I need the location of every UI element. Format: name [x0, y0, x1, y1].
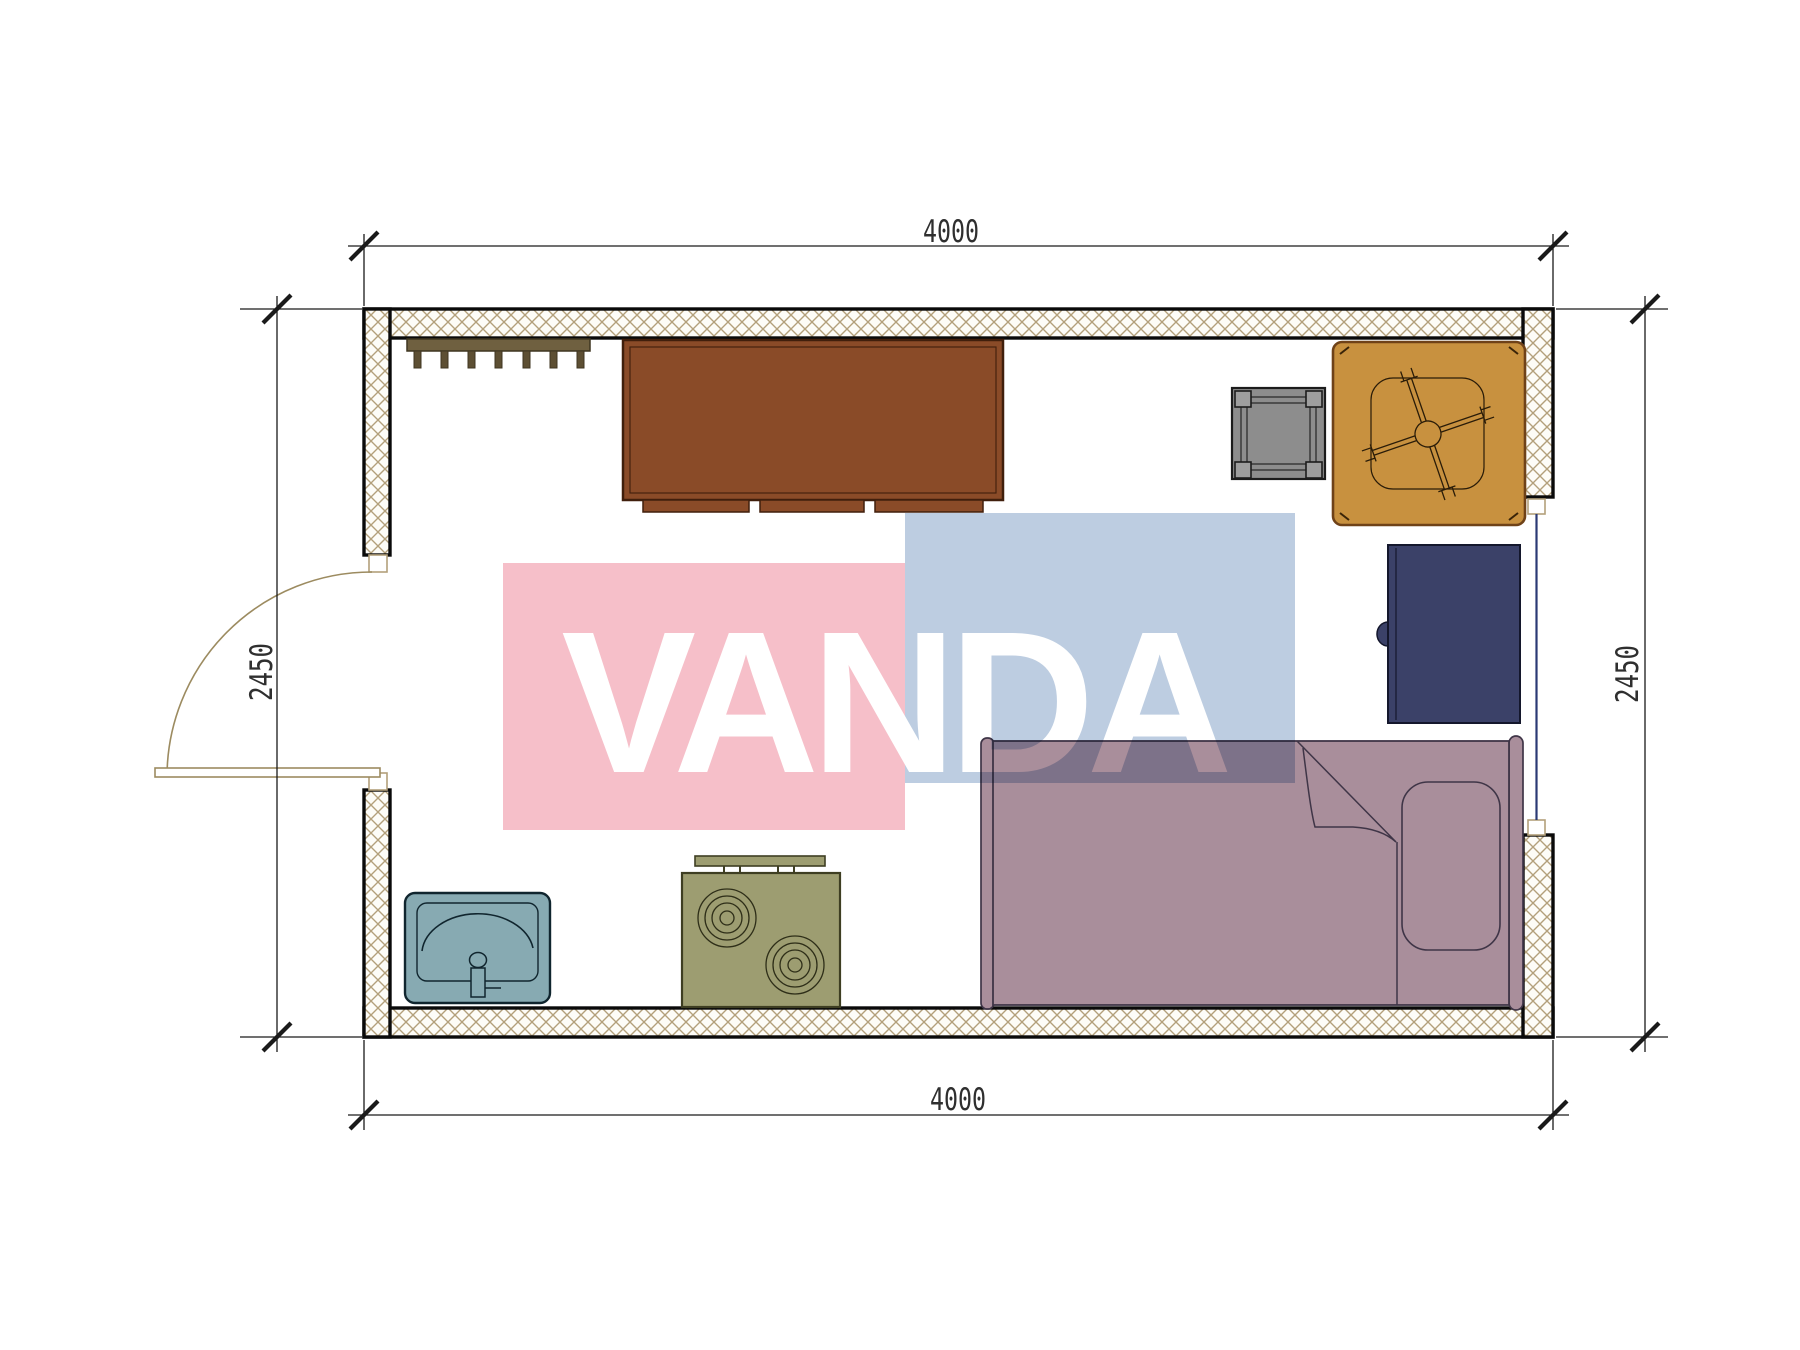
stool [1232, 388, 1325, 479]
floor-plan-canvas: VANDA [0, 0, 1800, 1350]
wardrobe [623, 340, 1003, 512]
refrigerator-handle [1377, 622, 1388, 646]
wall-left-lower [364, 790, 390, 1037]
stove [682, 856, 840, 1007]
wardrobe-base [643, 500, 983, 512]
coat-rack-hooks [414, 351, 584, 368]
watermark-pink-block [503, 563, 905, 830]
sink-faucet [471, 968, 485, 997]
sink-drain [470, 953, 487, 968]
window-jamb-top [1528, 499, 1545, 514]
refrigerator-body [1388, 545, 1520, 723]
stove-body [682, 873, 840, 1007]
coat-rack [407, 339, 590, 368]
wall-top [364, 309, 1553, 338]
wall-right-upper [1523, 309, 1553, 497]
watermark [503, 513, 1295, 830]
coat-rack-bar [407, 339, 590, 351]
dim-label-top: 4000 [923, 214, 979, 250]
stove-rail [695, 856, 825, 866]
refrigerator [1377, 545, 1520, 723]
floor-plan-drawing: VANDA [0, 0, 1800, 1350]
wall-bottom [364, 1008, 1553, 1037]
sink [405, 893, 550, 1003]
table-with-ceiling-fan [1333, 342, 1525, 525]
wall-left-upper [364, 309, 390, 555]
door-jamb-top [369, 555, 387, 572]
bed-headboard [1509, 736, 1523, 1010]
bed-pillow [1402, 782, 1500, 950]
window-jamb-bottom [1528, 820, 1545, 835]
wardrobe-body [623, 340, 1003, 500]
dim-label-right: 2450 [1610, 645, 1646, 703]
watermark-blue-block [905, 513, 1295, 783]
dim-label-left: 2450 [244, 643, 280, 701]
door-leaf [155, 768, 380, 777]
dim-label-bottom: 4000 [930, 1082, 986, 1118]
wall-right-lower [1523, 835, 1553, 1037]
